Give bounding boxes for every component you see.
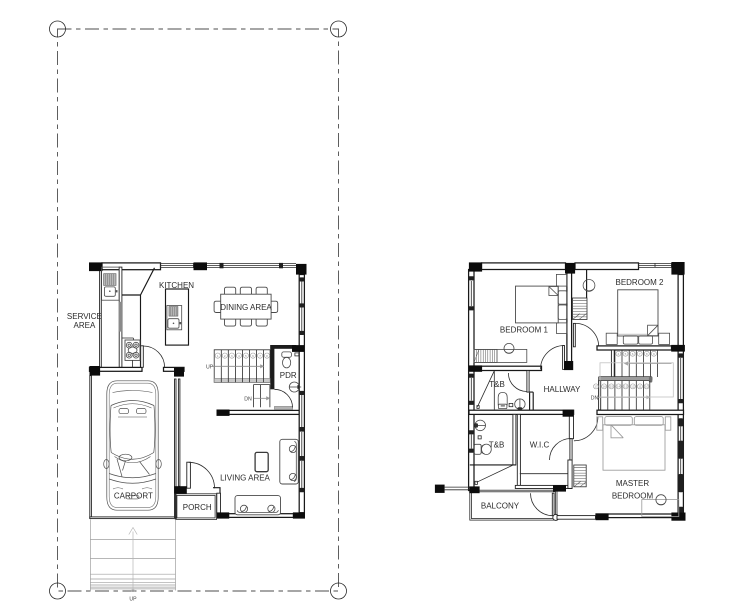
svg-text:CARPORT: CARPORT [114, 491, 153, 500]
svg-text:8: 8 [646, 352, 648, 356]
svg-text:AREA: AREA [74, 321, 96, 330]
svg-text:KITCHEN: KITCHEN [159, 281, 194, 290]
svg-text:HALLWAY: HALLWAY [544, 385, 581, 394]
svg-text:6: 6 [252, 354, 254, 358]
svg-text:10: 10 [645, 385, 649, 389]
svg-text:DINING AREA: DINING AREA [220, 303, 272, 312]
svg-text:6: 6 [632, 352, 634, 356]
svg-text:PDR: PDR [280, 371, 297, 380]
svg-text:5: 5 [625, 352, 627, 356]
svg-text:4: 4 [238, 354, 240, 358]
svg-text:MASTER: MASTER [616, 479, 650, 488]
svg-text:4: 4 [618, 352, 620, 356]
svg-text:W.I.C: W.I.C [530, 441, 550, 450]
svg-text:8: 8 [266, 354, 268, 358]
svg-text:12: 12 [631, 385, 635, 389]
svg-text:LIVING AREA: LIVING AREA [220, 474, 270, 483]
svg-text:DN: DN [591, 395, 599, 401]
svg-text:T&B: T&B [489, 380, 505, 389]
svg-text:BALCONY: BALCONY [481, 501, 520, 510]
svg-text:2: 2 [224, 354, 226, 358]
svg-text:9: 9 [653, 352, 655, 356]
svg-text:17: 17 [594, 385, 598, 389]
svg-text:5: 5 [245, 354, 247, 358]
svg-text:7: 7 [259, 354, 261, 358]
svg-text:16: 16 [602, 385, 606, 389]
svg-text:7: 7 [639, 352, 641, 356]
svg-text:UP: UP [129, 597, 137, 603]
svg-text:14: 14 [617, 385, 621, 389]
svg-text:BEDROOM: BEDROOM [612, 492, 654, 501]
svg-text:1: 1 [217, 354, 219, 358]
svg-text:BEDROOM 2: BEDROOM 2 [615, 278, 664, 287]
svg-text:PORCH: PORCH [183, 503, 212, 512]
svg-text:UP: UP [206, 365, 214, 371]
svg-text:T&B: T&B [489, 440, 505, 449]
svg-text:15: 15 [610, 385, 614, 389]
svg-text:BEDROOM 1: BEDROOM 1 [500, 325, 549, 334]
svg-text:SERVICE: SERVICE [67, 312, 102, 321]
svg-text:3: 3 [231, 354, 233, 358]
svg-text:13: 13 [624, 385, 628, 389]
svg-text:11: 11 [638, 385, 641, 389]
svg-text:DN: DN [244, 396, 252, 402]
